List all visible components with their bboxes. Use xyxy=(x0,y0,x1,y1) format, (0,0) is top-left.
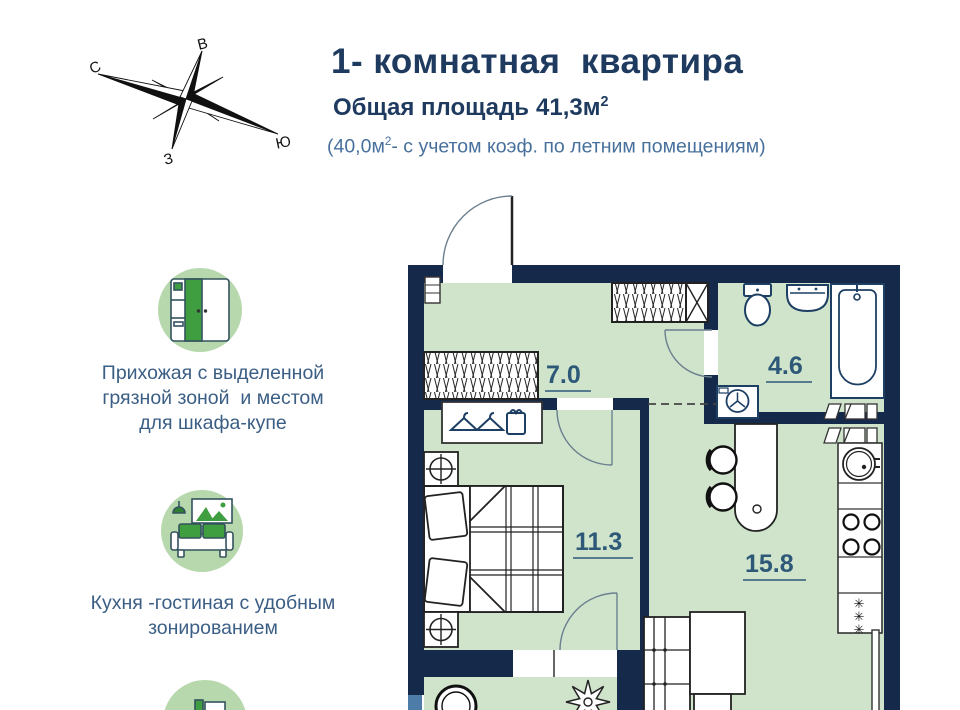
sink xyxy=(787,285,828,311)
kitchen-shelves xyxy=(824,428,877,443)
pillow xyxy=(424,492,467,540)
floor-plan: ✳✳✳ xyxy=(400,190,920,710)
bedroom xyxy=(424,402,563,647)
bedroom-area-label: 11.3 xyxy=(575,528,622,556)
electrical-panel xyxy=(425,277,440,303)
sofa-icon xyxy=(161,490,243,572)
compass-east-label: В xyxy=(196,36,210,54)
feature-hallway-line2: грязной зоной и местом xyxy=(58,386,368,411)
wardrobe-icon xyxy=(158,268,242,352)
area-note-suffix: - с учетом коэф. по летним помещениям) xyxy=(391,136,765,158)
area-note-line: (40,0м2- с учетом коэф. по летним помеще… xyxy=(327,135,766,159)
bathtub xyxy=(831,284,884,398)
compass-west-label: З xyxy=(162,150,175,168)
nightstand-bottom xyxy=(424,612,458,647)
floorplan-page: С В З Ю 1- комнатная квартира Общая площ… xyxy=(0,0,960,710)
hallway-area-label: 7.0 xyxy=(546,361,581,389)
balcony-wall-accent xyxy=(408,695,422,710)
kitchen-balcony-door-leaf xyxy=(872,630,879,710)
total-area-line: Общая площадь41,3м2 xyxy=(333,94,609,122)
bed-icon xyxy=(163,680,247,710)
page-title: 1- комнатная квартира xyxy=(331,42,743,82)
feature-kitchen-line2: зонированием xyxy=(58,616,368,641)
svg-text:✳: ✳ xyxy=(854,622,865,637)
feature-kitchen-line1: Кухня -гостиная с удобным xyxy=(58,591,368,616)
bedroom-wardrobe xyxy=(442,402,542,443)
kitchen-area-label: 15.8 xyxy=(745,550,794,578)
feature-hallway-line3: для шкафа-купе xyxy=(58,411,368,436)
compass-south-label: Ю xyxy=(274,133,292,153)
compass-rose: С В З Ю xyxy=(86,36,292,168)
bathroom-area-label: 4.6 xyxy=(768,352,803,380)
kitchen-counter: ✳✳✳ xyxy=(838,443,882,637)
sofa xyxy=(644,612,745,710)
bath-shelves xyxy=(824,404,877,419)
washing-machine xyxy=(717,386,758,418)
bed xyxy=(424,486,563,612)
bar-table xyxy=(735,424,777,531)
feature-hallway-line1: Прихожая с выделенной xyxy=(58,361,368,386)
fridge: ✳✳✳ xyxy=(854,596,865,637)
total-area-sup: 2 xyxy=(601,94,609,110)
entrance-door-arc xyxy=(443,196,512,265)
vent-shaft xyxy=(686,283,708,322)
feature-kitchen-label: Кухня -гостиная с удобным зонированием xyxy=(58,591,368,641)
total-area-value: 41,3м xyxy=(536,94,600,121)
area-note-prefix: (40,0м xyxy=(327,136,385,158)
toilet xyxy=(744,284,771,326)
nightstand-top xyxy=(424,452,458,486)
total-area-label: Общая площадь xyxy=(333,94,529,121)
pillow xyxy=(424,558,467,606)
feature-hallway-label: Прихожая с выделенной грязной зоной и ме… xyxy=(58,361,368,436)
